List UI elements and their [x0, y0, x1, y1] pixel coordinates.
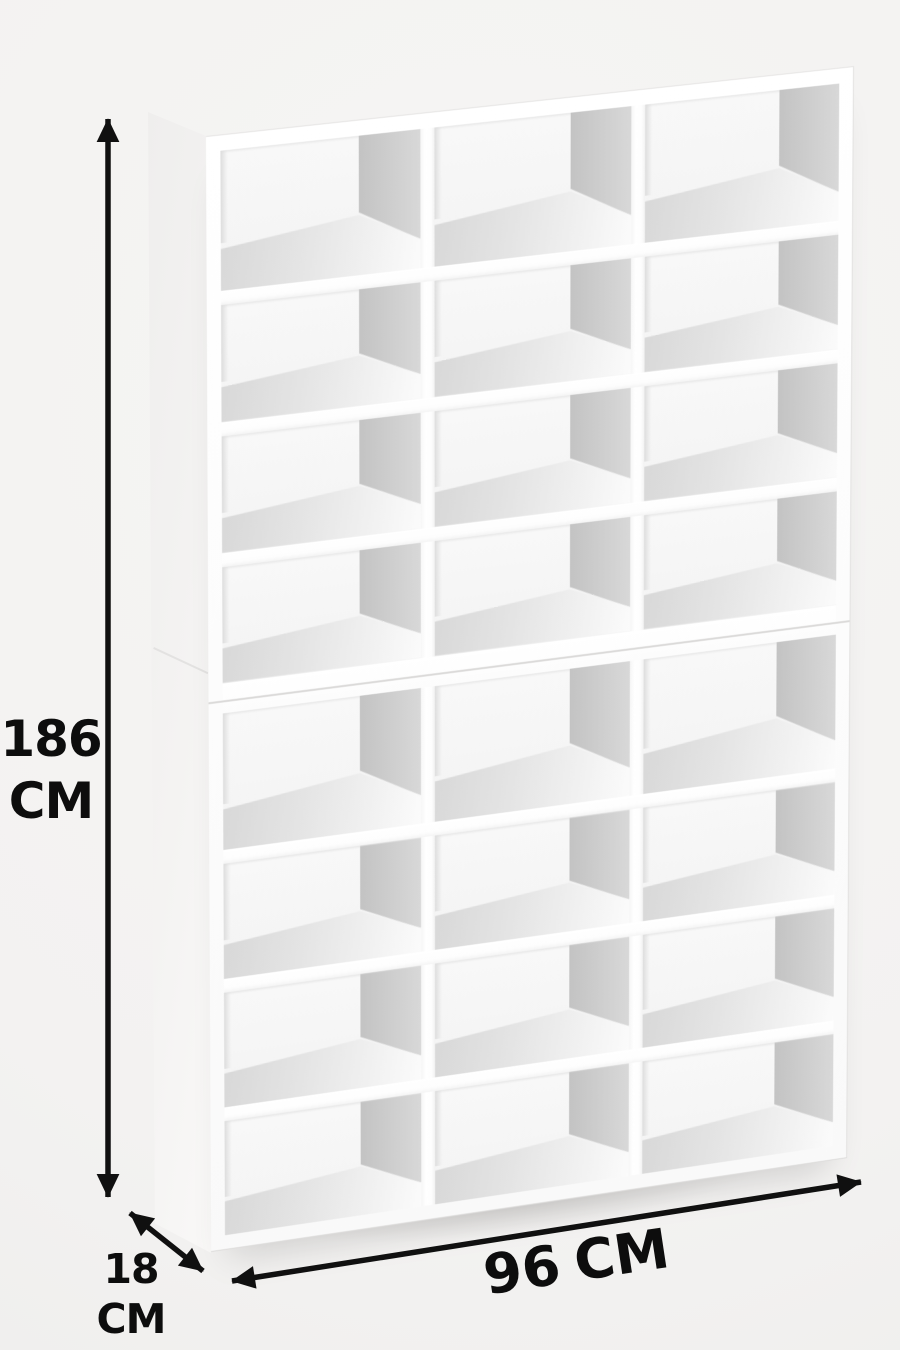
cubby-lwall	[434, 127, 441, 220]
shelf-board	[630, 659, 644, 796]
shelf-cubby	[222, 413, 421, 553]
cubby-lwall	[222, 566, 229, 644]
cubby-lwall	[643, 934, 650, 1009]
cubby-lwall	[643, 807, 650, 883]
depth-value: 18	[91, 1244, 171, 1294]
cubby-lwall	[221, 304, 228, 382]
shelf-cubby	[435, 661, 630, 823]
shelf-board	[420, 281, 434, 399]
cubby-lwall	[645, 104, 652, 196]
cubby-lwall	[643, 658, 650, 748]
shelf-board	[421, 411, 435, 529]
shelf-cubby	[434, 106, 631, 266]
shelf-cubby	[644, 363, 837, 501]
cubby-lwall	[435, 280, 442, 358]
cubby-lwall	[645, 256, 652, 333]
shelf-board	[421, 836, 435, 952]
cubby-lwall	[222, 435, 229, 513]
shelf-board	[421, 964, 435, 1080]
cubby-lwall	[435, 410, 442, 487]
shelf-cubby	[220, 129, 420, 291]
shelf-board	[421, 686, 435, 824]
shelf-board	[421, 541, 435, 658]
shelf-cubby	[435, 258, 631, 397]
cubby-lwall	[644, 385, 651, 462]
cubby-lwall	[435, 835, 442, 911]
shelf-board	[631, 257, 645, 374]
cubby-lwall	[225, 1120, 232, 1196]
cubby-lwall	[220, 150, 228, 243]
cubby-lwall	[223, 863, 230, 940]
shelf-panel-seam	[153, 647, 208, 674]
cubby-lwall	[223, 712, 230, 804]
cubby-lwall	[435, 1090, 442, 1166]
depth-dimension-label: 18 CM	[91, 1244, 171, 1344]
width-unit: CM	[571, 1221, 673, 1290]
shelf-cubby	[221, 282, 421, 422]
cubby-lwall	[642, 1061, 649, 1136]
shelf-cubby	[223, 688, 421, 851]
height-unit: CM	[0, 770, 106, 832]
width-value: 96	[480, 1238, 564, 1304]
shelf-board	[420, 128, 434, 269]
cubby-lwall	[224, 992, 231, 1069]
shelf-cubby	[645, 84, 839, 243]
shelf-board	[629, 808, 643, 923]
cubby-lwall	[435, 685, 442, 776]
cubby-lwall	[435, 540, 442, 617]
shelf-board	[629, 1062, 643, 1176]
shelf-board	[630, 515, 644, 631]
shelf-cubby	[643, 634, 836, 794]
shelf-board	[629, 935, 643, 1050]
cubby-lwall	[435, 963, 442, 1039]
shelf-board	[630, 386, 644, 503]
shelf-front-face	[206, 66, 854, 1252]
height-value: 186	[0, 708, 106, 770]
shelf-cubby	[435, 388, 631, 527]
shelf-side-panel	[148, 112, 211, 1253]
shelf-cubby	[645, 235, 839, 373]
depth-unit: CM	[91, 1294, 171, 1344]
shelf-board	[631, 105, 645, 245]
shelf-board	[421, 1091, 435, 1206]
cubby-lwall	[644, 514, 651, 590]
height-dimension-label: 186 CM	[0, 708, 106, 832]
dimension-diagram: 186 CM 18 CM 96CM	[0, 0, 900, 1350]
